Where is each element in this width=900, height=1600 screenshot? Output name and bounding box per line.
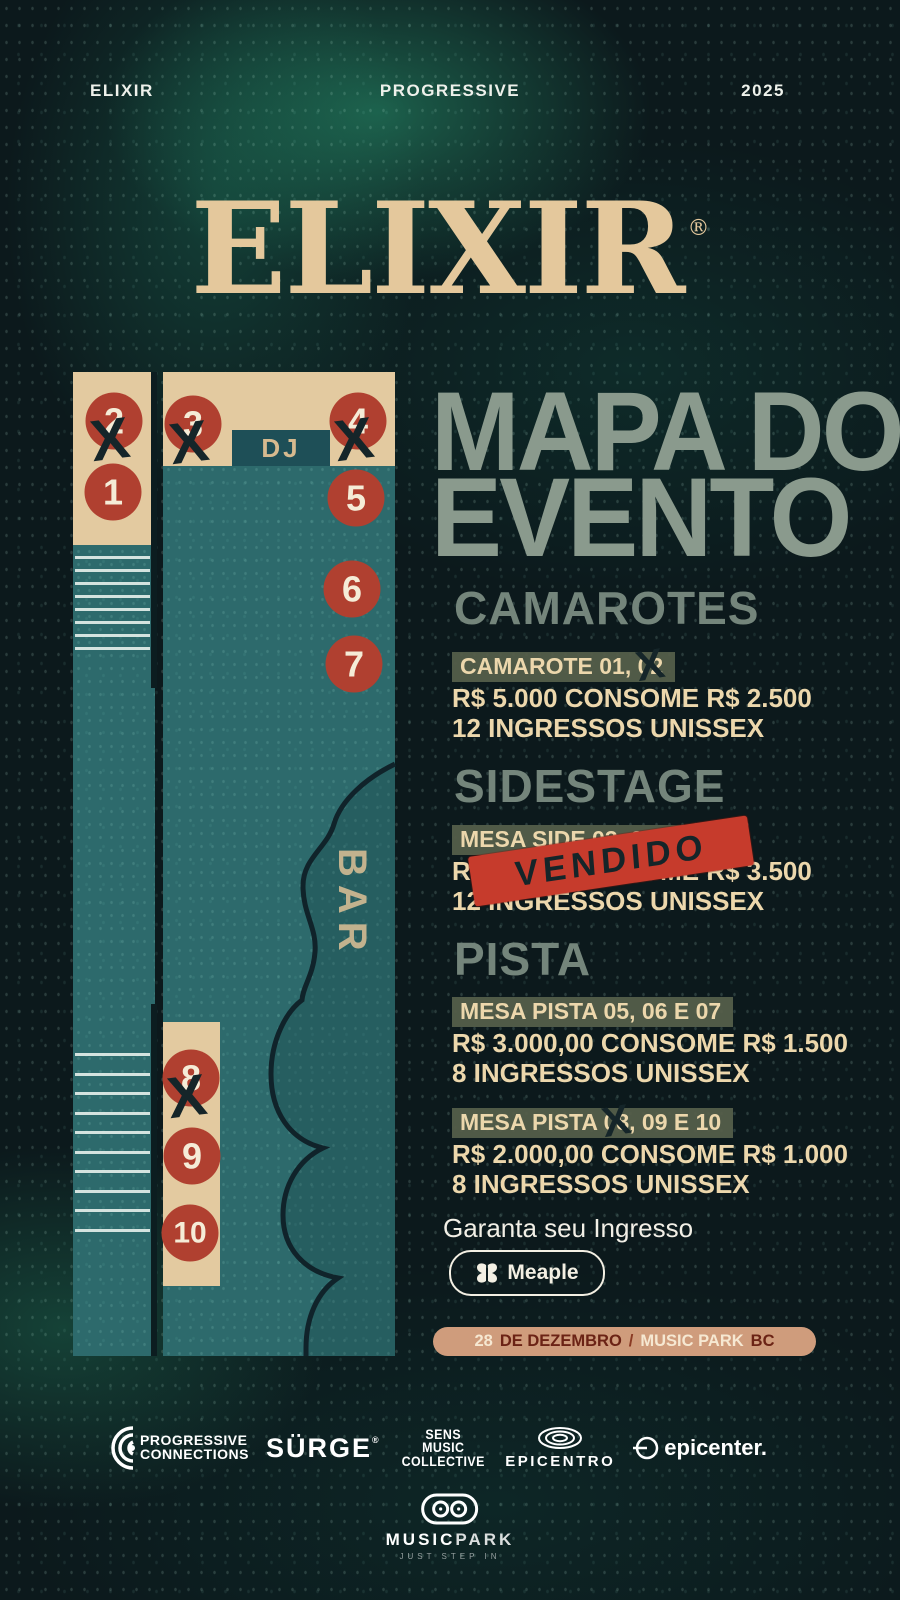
banner-day: 28 [475,1332,493,1351]
date-banner: 28 DE DEZEMBRO / MUSIC PARK BC [433,1327,816,1356]
cta-label: Garanta seu Ingresso [443,1213,693,1244]
camarote-sold-number: 02X [638,653,664,680]
pista2-title: MESA PISTA 08X, 09 E 10 [452,1108,733,1138]
pista-block-2: MESA PISTA 08X, 09 E 10 R$ 2.000,00 CONS… [452,1108,848,1198]
section-heading-sidestage: SIDESTAGE [454,763,725,809]
banner-month: DE DEZEMBRO [500,1332,622,1351]
camarote-title-pre: CAMAROTE 01, [460,653,638,679]
event-poster: ELIXIR PROGRESSIVE 2025 ELIXIR® MAPA DO … [0,0,900,1600]
banner-city: BC [751,1332,775,1351]
section-heading-pista: PISTA [454,936,591,982]
sold-x-mark: X [633,642,668,688]
pista2-sold-number: 08X [604,1109,630,1136]
camarote-price: R$ 5.000 CONSOME R$ 2.500 [452,684,812,712]
meaple-butterfly-icon [475,1262,499,1284]
section-heading-camarotes: CAMAROTES [454,585,759,631]
banner-separator: / [629,1332,634,1351]
pricing-column: CAMAROTES CAMAROTE 01, 02X R$ 5.000 CONS… [0,0,900,1600]
pista-block-1: MESA PISTA 05, 06 E 07 R$ 3.000,00 CONSO… [452,997,848,1087]
meaple-button[interactable]: Meaple [449,1250,605,1296]
banner-venue: MUSIC PARK [640,1332,743,1351]
pista1-tickets: 8 INGRESSOS UNISSEX [452,1059,848,1087]
pista1-price: R$ 3.000,00 CONSOME R$ 1.500 [452,1029,848,1057]
camarote-title: CAMAROTE 01, 02X [452,652,675,682]
pista1-title: MESA PISTA 05, 06 E 07 [452,997,733,1027]
camarotes-block: CAMAROTE 01, 02X R$ 5.000 CONSOME R$ 2.5… [452,652,812,742]
meaple-button-label: Meaple [507,1261,578,1285]
pista2-title-post: , 09 E 10 [629,1109,721,1135]
camarote-tickets: 12 INGRESSOS UNISSEX [452,714,812,742]
sold-x-mark: X [599,1098,634,1144]
pista2-tickets: 8 INGRESSOS UNISSEX [452,1170,848,1198]
pista2-title-pre: MESA PISTA [460,1109,604,1135]
pista2-price: R$ 2.000,00 CONSOME R$ 1.000 [452,1140,848,1168]
